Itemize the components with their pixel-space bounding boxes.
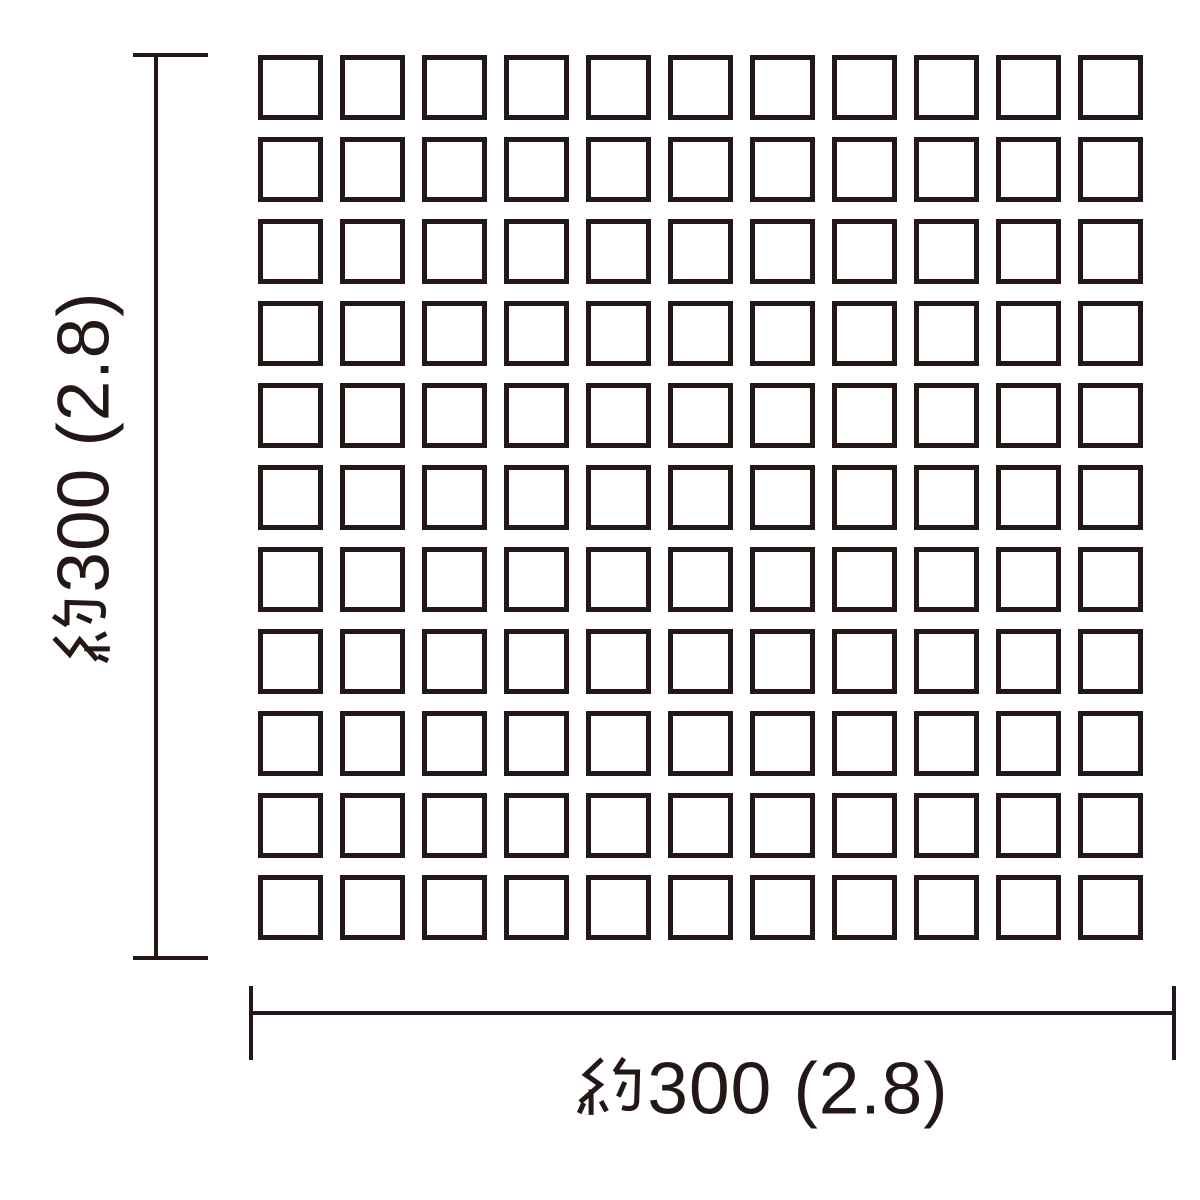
tile-cell <box>258 629 323 694</box>
tile-cell <box>504 55 569 120</box>
tile-cell <box>586 875 651 940</box>
tile-cell <box>258 219 323 284</box>
tile-cell <box>996 301 1061 366</box>
tile-cell <box>996 875 1061 940</box>
width-dimension-label: 300 (2.8) <box>575 1053 948 1126</box>
height-dimension-cap-bottom <box>133 956 208 960</box>
tile-cell <box>832 465 897 530</box>
tile-cell <box>586 55 651 120</box>
tile-cell <box>422 383 487 448</box>
tile-cell <box>832 793 897 858</box>
tile-cell <box>258 875 323 940</box>
tile-cell <box>996 137 1061 202</box>
tile-cell <box>914 301 979 366</box>
tile-cell <box>422 629 487 694</box>
tile-cell <box>668 55 733 120</box>
tile-cell <box>422 875 487 940</box>
tile-cell <box>996 711 1061 776</box>
tile-cell <box>586 383 651 448</box>
tile-cell <box>1078 383 1143 448</box>
tile-cell <box>340 711 405 776</box>
tile-cell <box>1078 629 1143 694</box>
tile-cell <box>750 383 815 448</box>
tile-cell <box>340 219 405 284</box>
tile-cell <box>750 301 815 366</box>
diagram-canvas: 300 (2.8) 300 (2.8) <box>0 0 1200 1200</box>
tile-cell <box>258 137 323 202</box>
tile-cell <box>258 793 323 858</box>
tile-cell <box>668 465 733 530</box>
tile-cell <box>340 137 405 202</box>
tile-cell <box>340 465 405 530</box>
tile-cell <box>914 711 979 776</box>
tile-cell <box>750 629 815 694</box>
tile-cell <box>832 55 897 120</box>
width-dimension-tick-left <box>249 986 253 1060</box>
tile-cell <box>750 793 815 858</box>
tile-cell <box>586 301 651 366</box>
tile-cell <box>668 547 733 612</box>
tile-cell <box>422 137 487 202</box>
tile-cell <box>832 875 897 940</box>
tile-cell <box>586 547 651 612</box>
tile-cell <box>1078 55 1143 120</box>
tile-cell <box>422 465 487 530</box>
tile-cell <box>750 219 815 284</box>
tile-cell <box>586 793 651 858</box>
tile-cell <box>340 875 405 940</box>
tile-cell <box>832 629 897 694</box>
tile-cell <box>422 301 487 366</box>
tile-cell <box>914 55 979 120</box>
height-dimension-value: 300 (2.8) <box>48 291 121 592</box>
width-dimension-line <box>251 1011 1176 1015</box>
tile-cell <box>668 875 733 940</box>
kanji-yaku-icon <box>51 599 113 665</box>
tile-cell <box>832 137 897 202</box>
tile-cell <box>668 301 733 366</box>
tile-cell <box>1078 465 1143 530</box>
tile-cell <box>504 383 569 448</box>
tile-cell <box>996 465 1061 530</box>
tile-cell <box>750 711 815 776</box>
tile-cell <box>832 711 897 776</box>
tile-cell <box>750 137 815 202</box>
tile-cell <box>258 301 323 366</box>
tile-cell <box>914 547 979 612</box>
tile-cell <box>586 219 651 284</box>
tile-cell <box>504 793 569 858</box>
tile-cell <box>258 711 323 776</box>
width-dimension-tick-right <box>1172 986 1176 1060</box>
tile-cell <box>1078 875 1143 940</box>
tile-cell <box>504 137 569 202</box>
tile-cell <box>996 383 1061 448</box>
tile-grid <box>258 55 1143 940</box>
tile-cell <box>914 137 979 202</box>
tile-cell <box>914 875 979 940</box>
tile-cell <box>586 629 651 694</box>
tile-cell <box>340 383 405 448</box>
tile-cell <box>914 465 979 530</box>
height-dimension-label: 300 (2.8) <box>48 291 121 664</box>
tile-cell <box>1078 547 1143 612</box>
tile-cell <box>340 301 405 366</box>
tile-cell <box>668 793 733 858</box>
tile-cell <box>668 383 733 448</box>
tile-cell <box>996 629 1061 694</box>
tile-cell <box>340 793 405 858</box>
tile-cell <box>996 793 1061 858</box>
tile-cell <box>750 547 815 612</box>
tile-cell <box>914 383 979 448</box>
tile-cell <box>258 55 323 120</box>
tile-cell <box>504 219 569 284</box>
tile-cell <box>586 711 651 776</box>
tile-cell <box>340 629 405 694</box>
tile-cell <box>914 629 979 694</box>
tile-cell <box>668 711 733 776</box>
height-dimension-line <box>154 53 158 960</box>
tile-cell <box>504 711 569 776</box>
tile-cell <box>996 55 1061 120</box>
kanji-yaku-icon <box>575 1056 641 1118</box>
tile-cell <box>422 711 487 776</box>
tile-cell <box>258 465 323 530</box>
tile-cell <box>258 383 323 448</box>
tile-cell <box>340 55 405 120</box>
tile-cell <box>504 875 569 940</box>
tile-cell <box>1078 219 1143 284</box>
tile-cell <box>996 219 1061 284</box>
tile-cell <box>750 875 815 940</box>
tile-cell <box>914 793 979 858</box>
tile-cell <box>996 547 1061 612</box>
tile-cell <box>422 55 487 120</box>
tile-cell <box>258 547 323 612</box>
tile-cell <box>340 547 405 612</box>
tile-cell <box>832 547 897 612</box>
tile-cell <box>586 137 651 202</box>
tile-cell <box>668 137 733 202</box>
tile-cell <box>422 547 487 612</box>
height-dimension-cap-top <box>133 53 208 57</box>
tile-cell <box>586 465 651 530</box>
tile-cell <box>1078 711 1143 776</box>
tile-cell <box>422 219 487 284</box>
tile-cell <box>422 793 487 858</box>
tile-cell <box>832 383 897 448</box>
tile-cell <box>914 219 979 284</box>
tile-cell <box>1078 301 1143 366</box>
tile-cell <box>750 55 815 120</box>
tile-cell <box>504 301 569 366</box>
tile-cell <box>750 465 815 530</box>
tile-cell <box>668 629 733 694</box>
tile-cell <box>504 547 569 612</box>
tile-cell <box>832 219 897 284</box>
tile-cell <box>668 219 733 284</box>
tile-cell <box>1078 137 1143 202</box>
tile-cell <box>504 465 569 530</box>
tile-cell <box>832 301 897 366</box>
tile-cell <box>1078 793 1143 858</box>
tile-cell <box>504 629 569 694</box>
width-dimension-value: 300 (2.8) <box>647 1053 948 1126</box>
